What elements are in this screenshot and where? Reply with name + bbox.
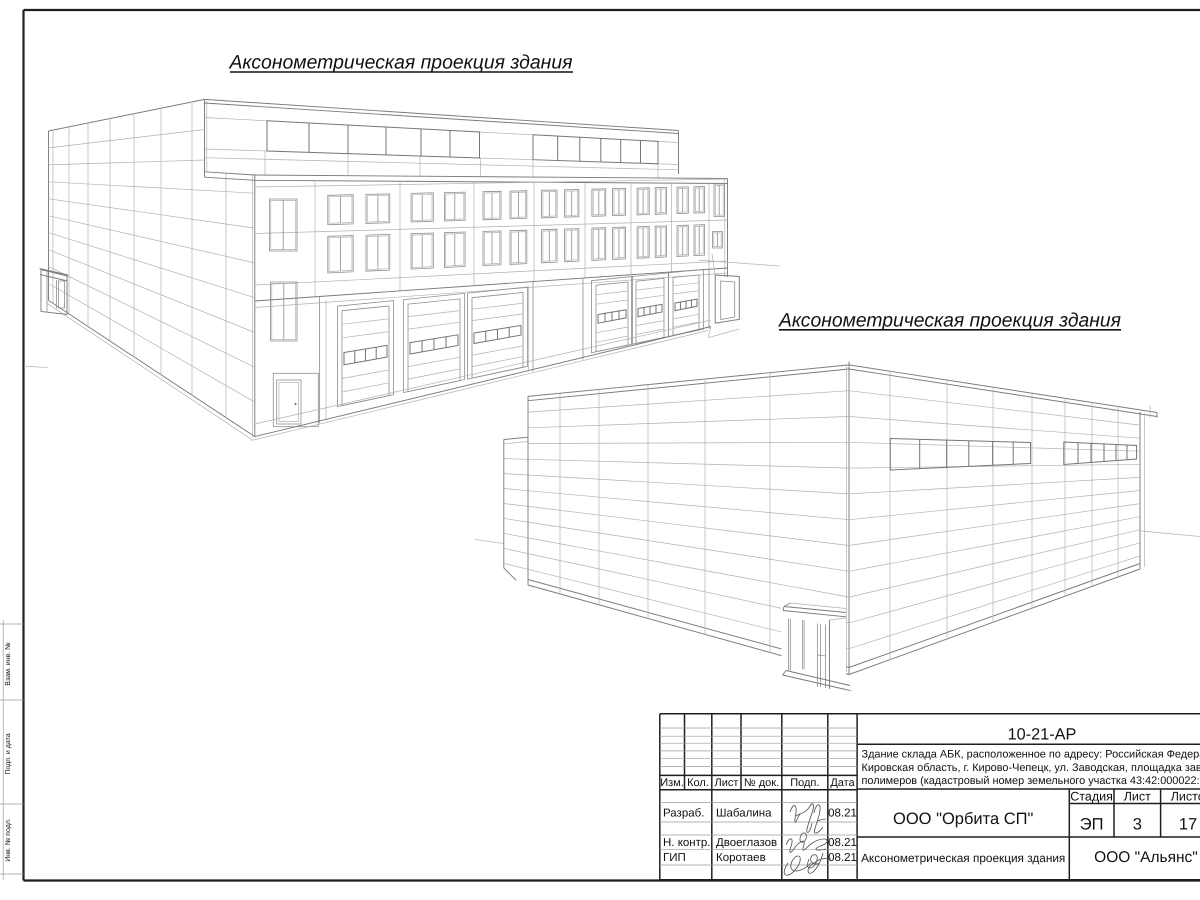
svg-text:ООО "Альянс": ООО "Альянс"	[1094, 849, 1198, 866]
svg-text:Подп.: Подп.	[790, 777, 819, 789]
svg-text:Стадия: Стадия	[1070, 790, 1113, 804]
svg-text:Листов: Листов	[1171, 790, 1200, 804]
svg-text:ЭП: ЭП	[1080, 816, 1104, 834]
svg-text:08.21: 08.21	[828, 807, 857, 819]
svg-text:Аксонометрическая проекция зда: Аксонометрическая проекция здания	[778, 309, 1122, 331]
svg-text:ООО "Орбита СП": ООО "Орбита СП"	[893, 810, 1034, 828]
svg-text:Лист: Лист	[1124, 790, 1151, 804]
svg-text:Лист: Лист	[715, 777, 739, 789]
svg-text:Шабалина: Шабалина	[716, 807, 772, 819]
svg-text:Двоеглазов: Двоеглазов	[716, 837, 777, 849]
svg-text:Взам. инв. №: Взам. инв. №	[5, 642, 12, 686]
svg-text:№ док.: № док.	[744, 777, 779, 789]
svg-text:Дата: Дата	[830, 777, 855, 789]
svg-text:Здание склада АБК, расположенн: Здание склада АБК, расположенное по адре…	[862, 749, 1200, 761]
svg-text:Коротаев: Коротаев	[716, 852, 766, 864]
svg-text:Кировская область, г. Кирово-Ч: Кировская область, г. Кирово-Чепецк, ул.…	[862, 762, 1200, 774]
svg-text:08.21: 08.21	[828, 852, 857, 864]
svg-text:3: 3	[1133, 816, 1142, 834]
svg-text:Инв. № подл.: Инв. № подл.	[5, 818, 12, 862]
svg-text:ГИП: ГИП	[663, 852, 686, 864]
svg-text:Подп. и дата: Подп. и дата	[5, 733, 12, 774]
svg-text:Разраб.: Разраб.	[663, 807, 704, 819]
svg-text:08.21: 08.21	[828, 837, 857, 849]
svg-text:Аксонометрическая проекция зда: Аксонометрическая проекция здания	[861, 851, 1065, 865]
svg-text:17: 17	[1179, 816, 1197, 834]
svg-text:Н. контр.: Н. контр.	[663, 837, 710, 849]
svg-text:Кол.: Кол.	[687, 777, 709, 789]
svg-text:Изм.: Изм.	[660, 777, 684, 789]
svg-text:полимеров (кадастровый номер з: полимеров (кадастровый номер земельного …	[862, 775, 1200, 787]
svg-text:10-21-АР: 10-21-АР	[1008, 726, 1077, 744]
svg-text:Аксонометрическая проекция зда: Аксонометрическая проекция здания	[229, 52, 574, 74]
